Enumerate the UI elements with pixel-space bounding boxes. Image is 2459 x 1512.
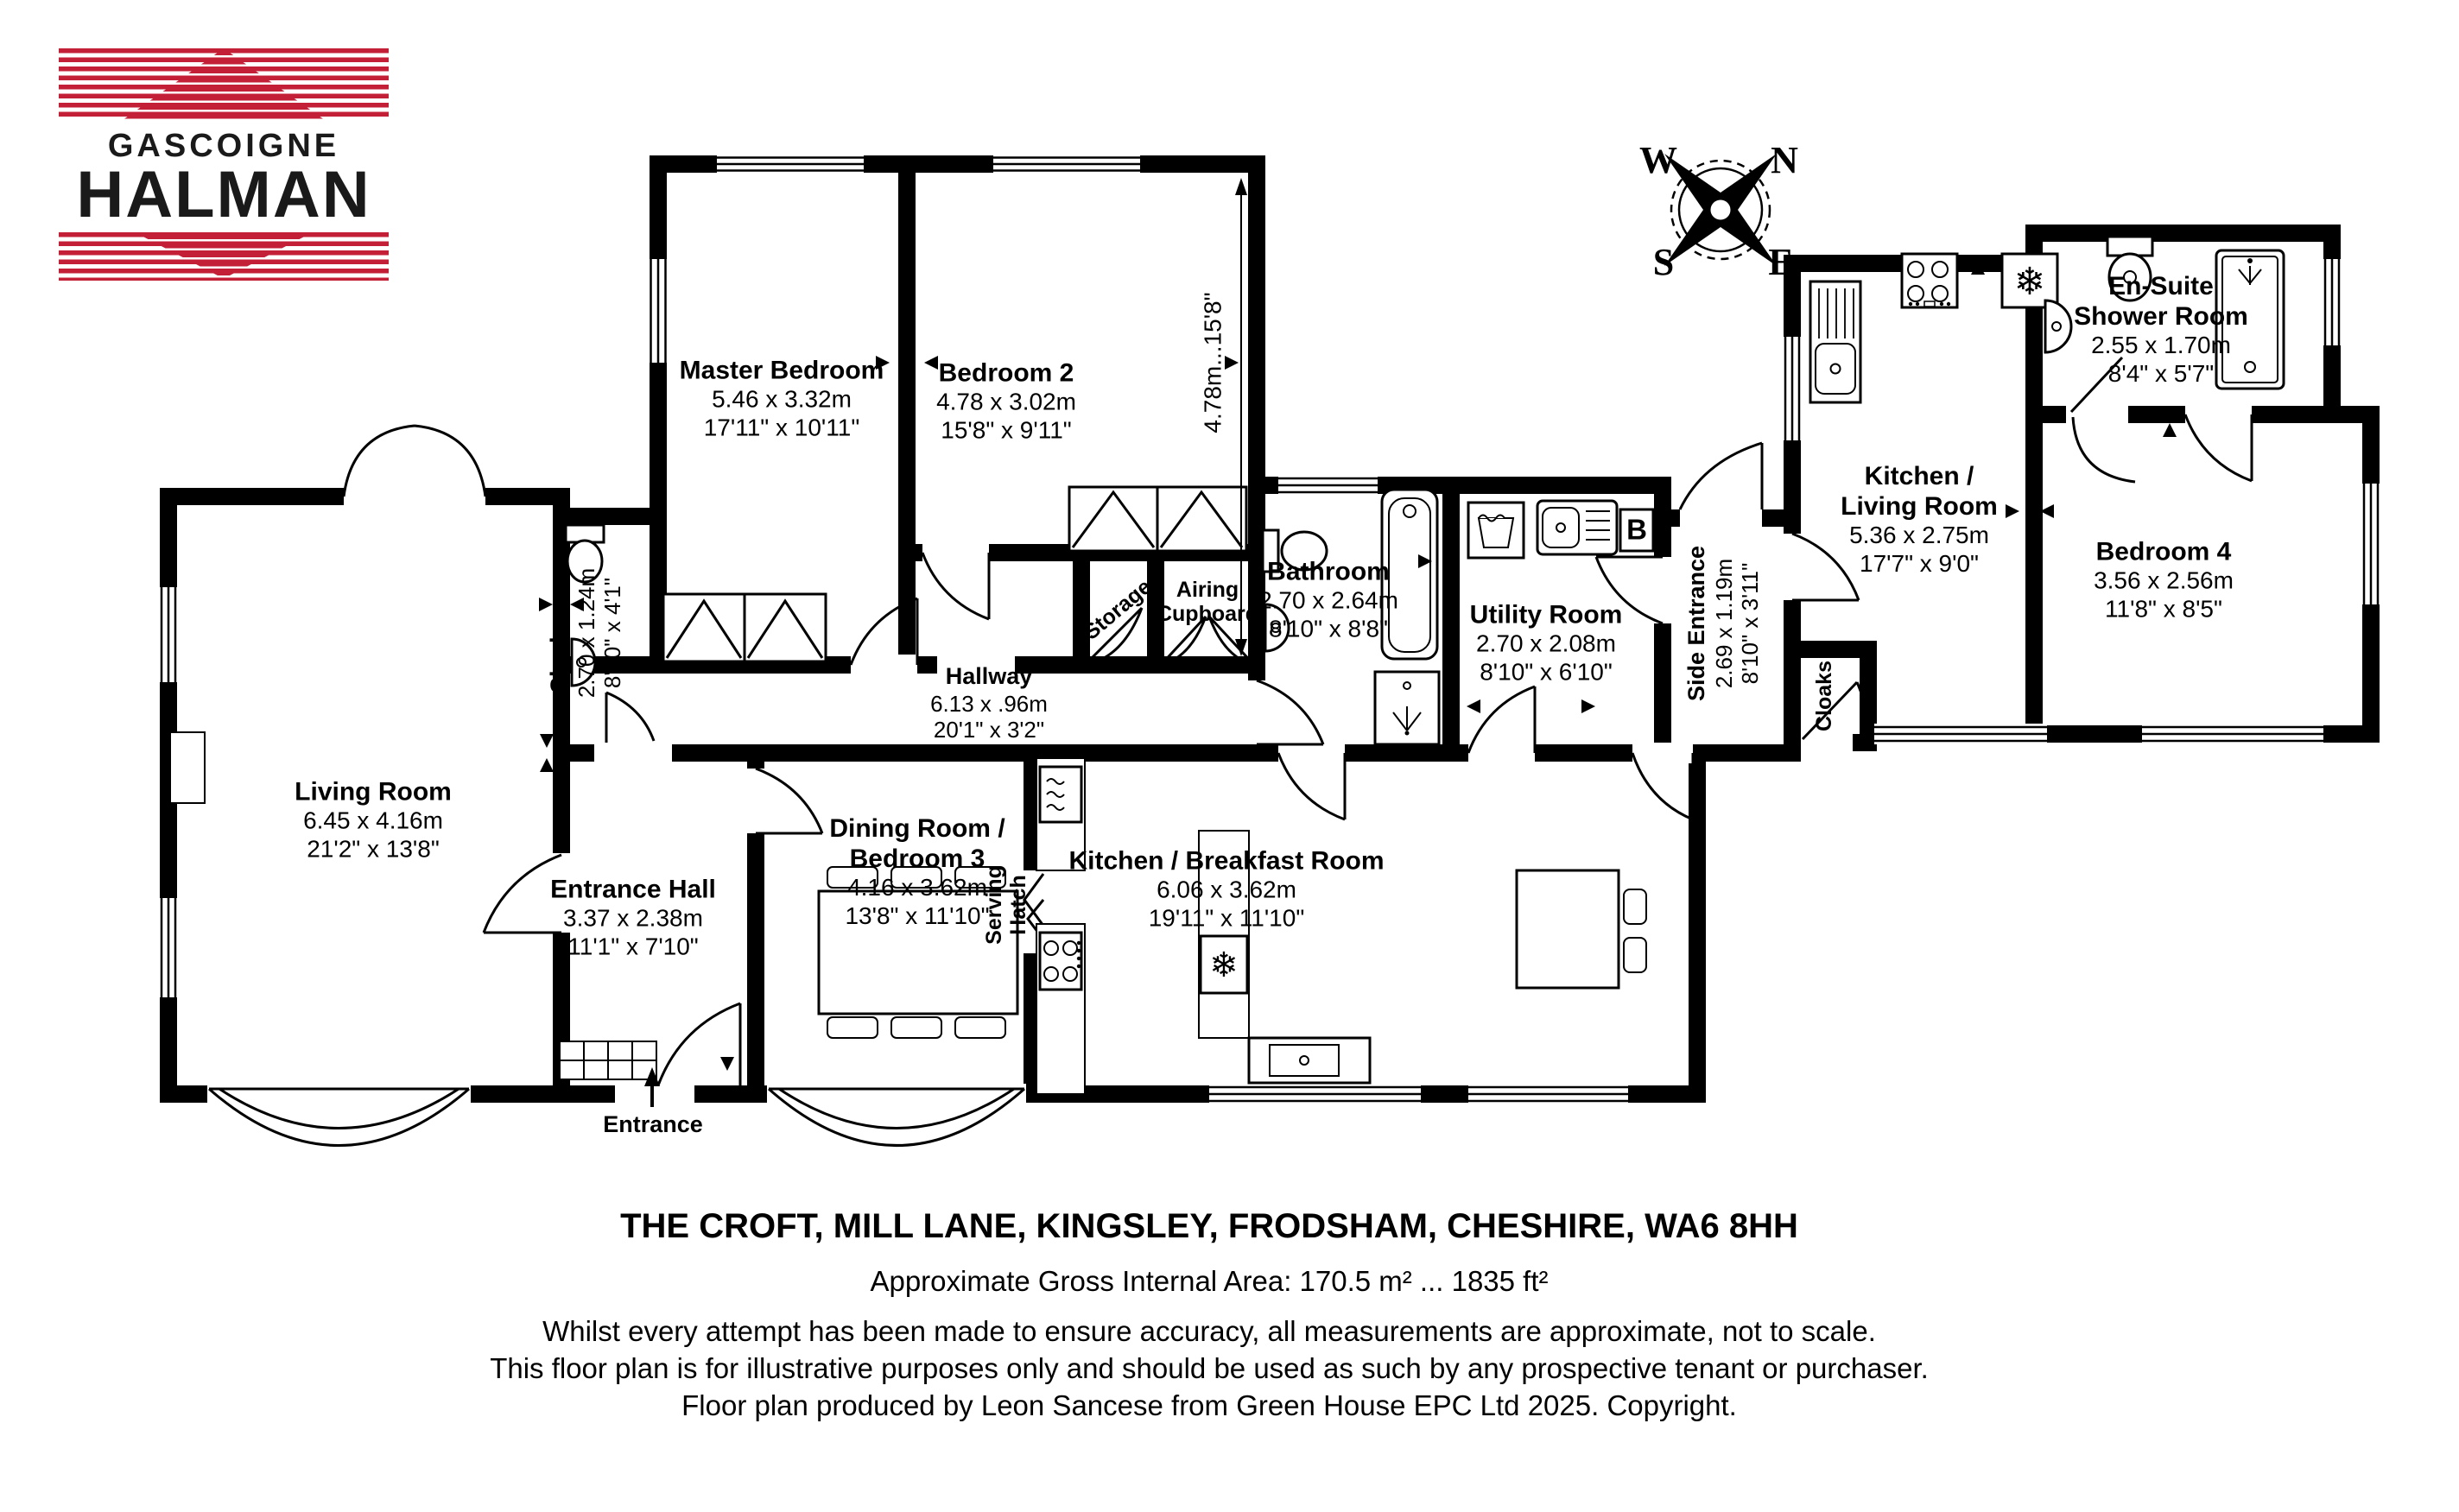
property-address: THE CROFT, MILL LANE, KINGSLEY, FRODSHAM… xyxy=(0,1207,2418,1246)
master-wardrobe-icon xyxy=(663,594,826,661)
disclaimer-line-1: Whilst every attempt has been made to en… xyxy=(0,1315,2418,1348)
washing-machine-icon xyxy=(1468,503,1524,558)
disclaimer-line-2: This floor plan is for illustrative purp… xyxy=(0,1352,2418,1385)
room-label-master-bedroom: Master Bedroom5.46 x 3.32m17'11" x 10'11… xyxy=(680,356,884,443)
room-label-hallway: Hallway6.13 x .96m20'1" x 3'2" xyxy=(930,663,1048,743)
entrance-label: Entrance xyxy=(603,1111,703,1137)
compass-east-label: E xyxy=(1768,241,1793,283)
shower-icon xyxy=(1375,672,1439,744)
window-seat-icon xyxy=(170,732,205,803)
annex-freezer-icon: ❄ xyxy=(2002,254,2057,307)
oven-unit-icon xyxy=(1249,1038,1370,1083)
annex-sink-icon xyxy=(1810,282,1860,402)
room-label-utility-room: Utility Room2.70 x 2.08m8'10" x 6'10" xyxy=(1470,600,1623,687)
room-label-kitchen-breakfast-room: Kitchen / Breakfast Room6.06 x 3.62m19'1… xyxy=(1068,846,1384,933)
serving-hatch-label: Serving Hatch xyxy=(982,857,1030,952)
room-label-kitchen-living-room: Kitchen / Living Room5.36 x 2.75m17'7" x… xyxy=(1828,461,2010,579)
svg-text:❄: ❄ xyxy=(2014,260,2046,304)
bedroom2-dimension-label: 4.78m...15'8" xyxy=(1199,292,1226,433)
compass-icon: W N S E xyxy=(1639,139,1798,283)
utility-sink-icon xyxy=(1537,501,1617,554)
room-label-bedroom-4: Bedroom 43.56 x 2.56m11'8" x 8'5" xyxy=(2094,537,2234,624)
fridge-freezer-icon: ❄ xyxy=(1201,936,1247,993)
producer-credit: Floor plan produced by Leon Sancese from… xyxy=(0,1389,2418,1422)
compass-west-label: W xyxy=(1639,139,1677,181)
room-label-side-entrance: Side Entrance2.69 x 1.19m8'10" x 3'11" xyxy=(1683,546,1763,701)
room-label-cloakroom: Cloakroom2.70 x 1.24m8'10" x 4'1" xyxy=(546,568,625,698)
compass-north-label: N xyxy=(1771,139,1798,181)
bedroom2-wardrobe-icon xyxy=(1069,487,1246,551)
room-label-en-suite-shower-room: En-Suite Shower Room2.55 x 1.70m8'4" x 5… xyxy=(2066,271,2256,389)
floorplan-page: GASCOIGNE HALMAN xyxy=(0,0,2459,1512)
hob-icon xyxy=(1040,933,1081,990)
cloaks-label: Cloaks xyxy=(1812,661,1836,731)
gross-internal-area: Approximate Gross Internal Area: 170.5 m… xyxy=(0,1265,2418,1298)
compass-south-label: S xyxy=(1653,241,1674,283)
boiler-label: B xyxy=(1626,515,1647,547)
radiator-icon xyxy=(560,1041,656,1079)
room-label-bedroom-2: Bedroom 24.78 x 3.02m15'8" x 9'11" xyxy=(936,358,1076,446)
room-label-bathroom: Bathroom2.70 x 2.64m8'10" x 8'8" xyxy=(1258,557,1398,644)
airing-cupboard-label: Airing Cupboard xyxy=(1143,578,1272,626)
footer: THE CROFT, MILL LANE, KINGSLEY, FRODSHAM… xyxy=(0,1207,2418,1427)
microwave-icon xyxy=(1040,767,1081,822)
annex-hob-icon xyxy=(1902,254,1957,307)
room-label-living-room: Living Room6.45 x 4.16m21'2" x 13'8" xyxy=(295,777,452,864)
svg-text:❄: ❄ xyxy=(1209,946,1239,985)
room-label-entrance-hall: Entrance Hall3.37 x 2.38m11'1" x 7'10" xyxy=(550,875,716,962)
